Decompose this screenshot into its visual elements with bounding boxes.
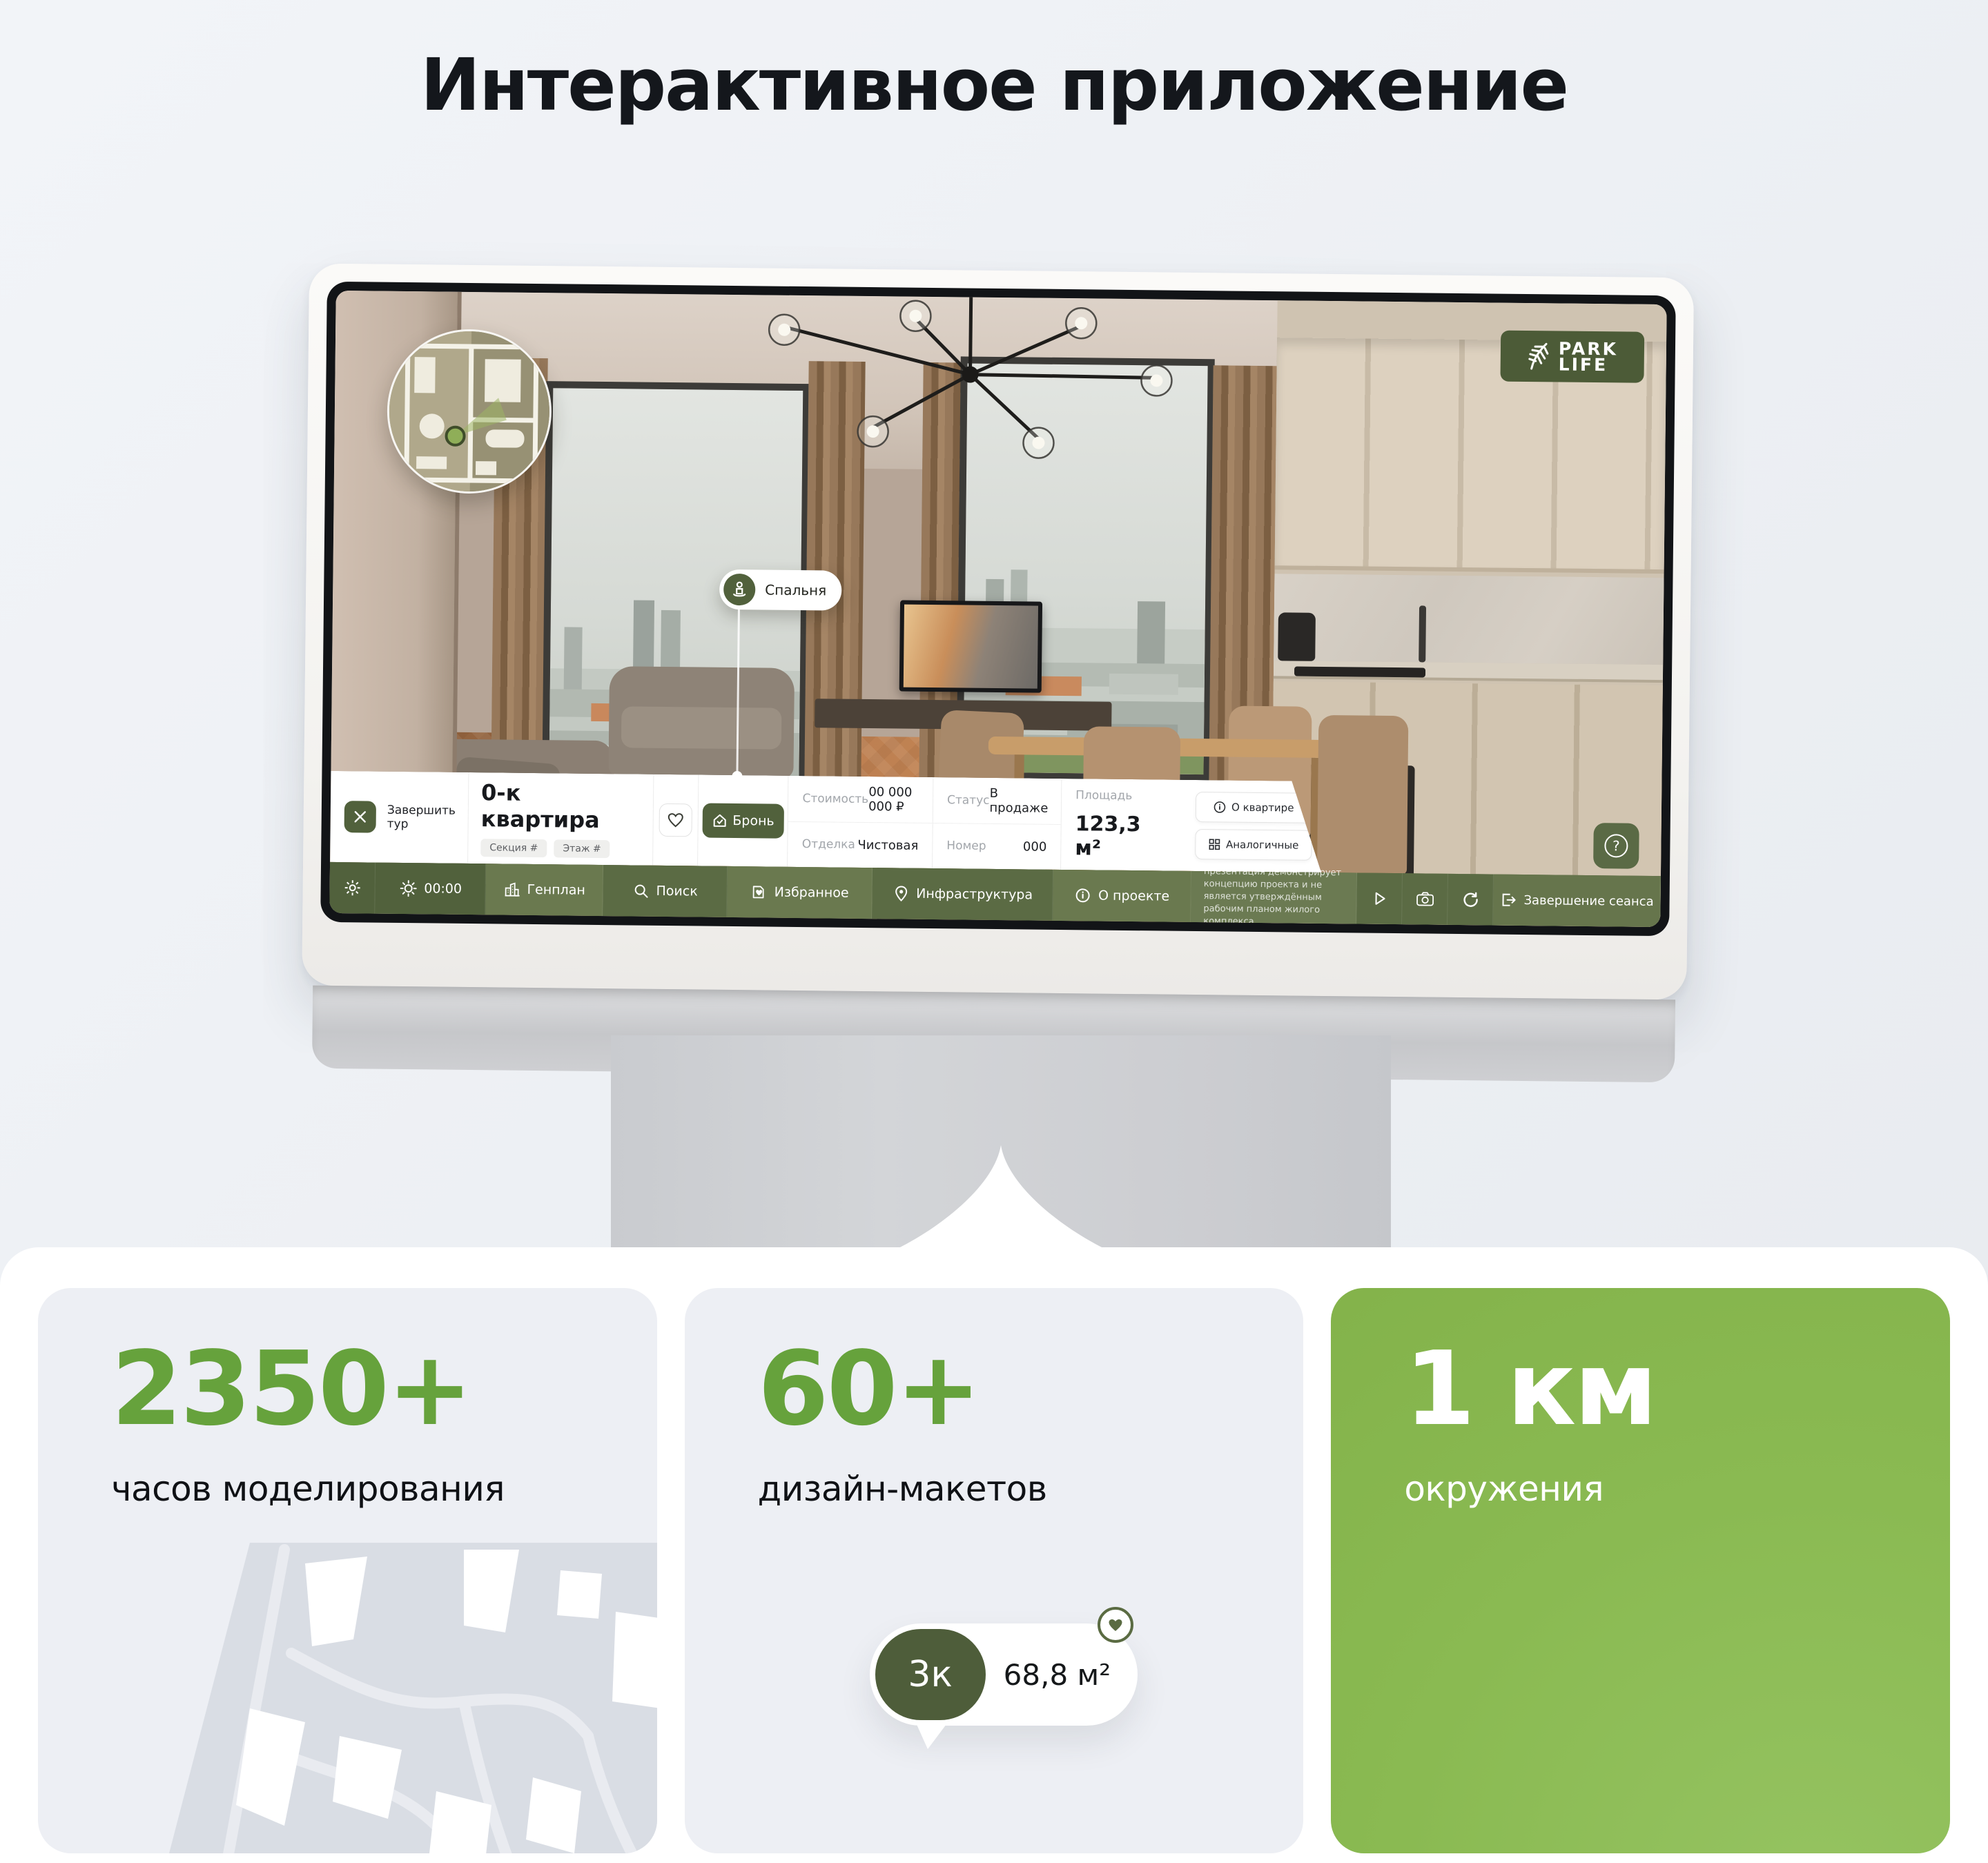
floor-badge: Этаж # xyxy=(554,839,610,858)
stat-label: часов моделирования xyxy=(111,1469,616,1509)
buildings-icon xyxy=(503,881,520,898)
grid-icon xyxy=(1208,838,1220,850)
chip-area-value: 68,8 м² xyxy=(1004,1658,1111,1692)
nav-about-project-label: О проекте xyxy=(1098,888,1169,904)
play-button[interactable] xyxy=(1356,872,1403,924)
camera-icon xyxy=(1416,891,1434,906)
info-col-price: Стоимость 00 000 000 ₽ Отделка Чистовая xyxy=(788,776,934,868)
close-tour-button[interactable] xyxy=(344,801,376,832)
info-col-status: Статус В продаже Номер 000 xyxy=(933,777,1062,870)
kiosk-stand xyxy=(611,1035,1391,1248)
nav-search-label: Поиск xyxy=(656,884,697,899)
masterplan-map-illustration xyxy=(77,1529,657,1853)
map-pin-icon xyxy=(893,885,909,901)
stat-value: 2350+ xyxy=(111,1338,616,1440)
search-icon xyxy=(632,882,649,899)
heart-icon xyxy=(667,812,684,828)
kitchen-backsplash xyxy=(1274,574,1664,665)
kiosk-bezel: PARK LIFE Спальня xyxy=(320,282,1676,936)
nav-favorites[interactable]: Избранное xyxy=(727,866,873,919)
nav-about-project[interactable]: О проекте xyxy=(1053,870,1191,922)
refresh-icon xyxy=(1462,891,1479,908)
end-session-label: Завершение сеанса xyxy=(1523,893,1653,909)
screenshot-button[interactable] xyxy=(1402,873,1448,925)
apartment-info-bar: Завершить тур 0-к квартира Секция # Этаж… xyxy=(330,771,1322,872)
stat-card-modeling: 2350+ часов моделирования xyxy=(38,1288,657,1853)
price-row: Стоимость 00 000 000 ₽ xyxy=(788,776,933,823)
stat-card-layouts: 60+ дизайн-макетов 3к 68,8 м² xyxy=(685,1288,1304,1853)
end-session-button[interactable]: Завершение сеанса xyxy=(1493,875,1661,928)
reserve-section: Бронь xyxy=(698,774,789,866)
teleport-icon xyxy=(723,574,755,605)
stat-value: 1 км xyxy=(1404,1338,1909,1440)
favorites-heart-icon xyxy=(751,884,768,900)
reset-button[interactable] xyxy=(1448,874,1494,926)
status-row: Статус В продаже xyxy=(933,777,1062,823)
stat-label: дизайн-макетов xyxy=(758,1469,1263,1509)
heart-icon xyxy=(1107,1617,1124,1632)
rooms-pill: 3к xyxy=(875,1629,986,1720)
kitchen-kettle xyxy=(1278,612,1316,661)
nav-genplan[interactable]: Генплан xyxy=(485,864,603,916)
stat-value: 60+ xyxy=(758,1338,1263,1440)
area-label: Площадь xyxy=(1075,788,1172,803)
chip-favorite-badge xyxy=(1098,1607,1133,1643)
finish-tour: Завершить тур xyxy=(330,771,469,864)
question-icon: ? xyxy=(1604,834,1628,857)
info-icon xyxy=(1214,801,1226,813)
parklife-logo: PARK LIFE xyxy=(1500,331,1644,383)
number-label: Номер xyxy=(946,839,986,853)
about-apartment-button[interactable]: О квартире xyxy=(1195,792,1312,823)
kiosk-screen: PARK LIFE Спальня xyxy=(329,291,1666,927)
reserve-button[interactable]: Бронь xyxy=(702,803,784,839)
reserve-label: Бронь xyxy=(732,813,774,829)
scene-armchair xyxy=(608,666,795,779)
nav-infrastructure[interactable]: Инфраструктура xyxy=(872,868,1053,921)
sun-icon xyxy=(399,879,417,897)
stat-cards: 2350+ часов моделирования xyxy=(38,1288,1950,1853)
apartment-chip: 3к 68,8 м² xyxy=(870,1623,1138,1726)
gear-icon xyxy=(344,879,362,897)
chandelier xyxy=(707,291,1234,489)
finish-label: Отделка xyxy=(802,837,855,852)
price-label: Стоимость xyxy=(802,792,868,806)
close-icon xyxy=(354,810,367,823)
fern-leaf-icon xyxy=(1527,341,1552,371)
daytime-control[interactable]: 00:00 xyxy=(375,863,486,915)
kiosk-shell: PARK LIFE Спальня xyxy=(302,264,1694,1000)
favorite-section xyxy=(653,774,699,866)
exit-icon xyxy=(1500,892,1517,908)
play-icon xyxy=(1371,890,1387,907)
logo-text: PARK LIFE xyxy=(1559,340,1618,373)
similar-apartments-button[interactable]: Аналогичные xyxy=(1195,829,1312,861)
room-pin-bedroom[interactable]: Спальня xyxy=(719,569,842,611)
nav-search[interactable]: Поиск xyxy=(603,865,728,917)
nav-genplan-label: Генплан xyxy=(527,882,585,898)
similar-apartments-label: Аналогичные xyxy=(1226,838,1299,851)
floorplan-minimap[interactable] xyxy=(387,329,552,494)
status-label: Статус xyxy=(947,793,990,808)
settings-button[interactable] xyxy=(329,862,376,914)
about-apartment-label: О квартире xyxy=(1231,801,1294,815)
info-col-area: Площадь 123,3 м² xyxy=(1061,779,1186,871)
section-badge: Секция # xyxy=(480,839,547,857)
number-row: Номер 000 xyxy=(933,823,1061,870)
help-button[interactable]: ? xyxy=(1593,823,1639,869)
scene-tv xyxy=(899,601,1042,693)
nav-favorites-label: Избранное xyxy=(774,885,849,901)
room-pin-label: Спальня xyxy=(765,581,826,598)
price-value: 00 000 000 ₽ xyxy=(868,785,919,815)
disclaimer-text: презентация демонстрирует концепцию прое… xyxy=(1191,871,1357,924)
stand-notch xyxy=(897,1145,1104,1249)
finish-value: Чистовая xyxy=(857,838,918,853)
dining-chair xyxy=(1317,715,1408,875)
time-value: 00:00 xyxy=(424,881,462,897)
stats-panel: 2350+ часов моделирования xyxy=(0,1247,1988,1863)
area-value: 123,3 м² xyxy=(1075,812,1171,861)
apartment-summary: 0-к квартира Секция # Этаж # xyxy=(468,772,654,866)
kitchen-tap xyxy=(1419,605,1426,662)
apartment-badges: Секция # Этаж # xyxy=(480,839,610,858)
stat-label: окружения xyxy=(1404,1469,1909,1509)
finish-row: Отделка Чистовая xyxy=(788,821,933,868)
finish-tour-label: Завершить тур xyxy=(387,803,456,832)
house-check-icon xyxy=(712,813,727,828)
nav-infrastructure-label: Инфраструктура xyxy=(916,886,1033,903)
info-icon xyxy=(1075,887,1091,904)
page-title: Интерактивное приложение xyxy=(0,43,1988,127)
number-value: 000 xyxy=(1023,839,1047,854)
kitchen-hob xyxy=(1294,667,1425,678)
tv-image xyxy=(904,605,1038,689)
favorite-button[interactable] xyxy=(659,803,692,837)
kiosk-device: PARK LIFE Спальня xyxy=(301,264,1694,1083)
status-value: В продаже xyxy=(989,786,1048,816)
apartment-title: 0-к квартира xyxy=(481,779,641,833)
stat-card-surroundings: 1 км окружения xyxy=(1331,1288,1950,1853)
